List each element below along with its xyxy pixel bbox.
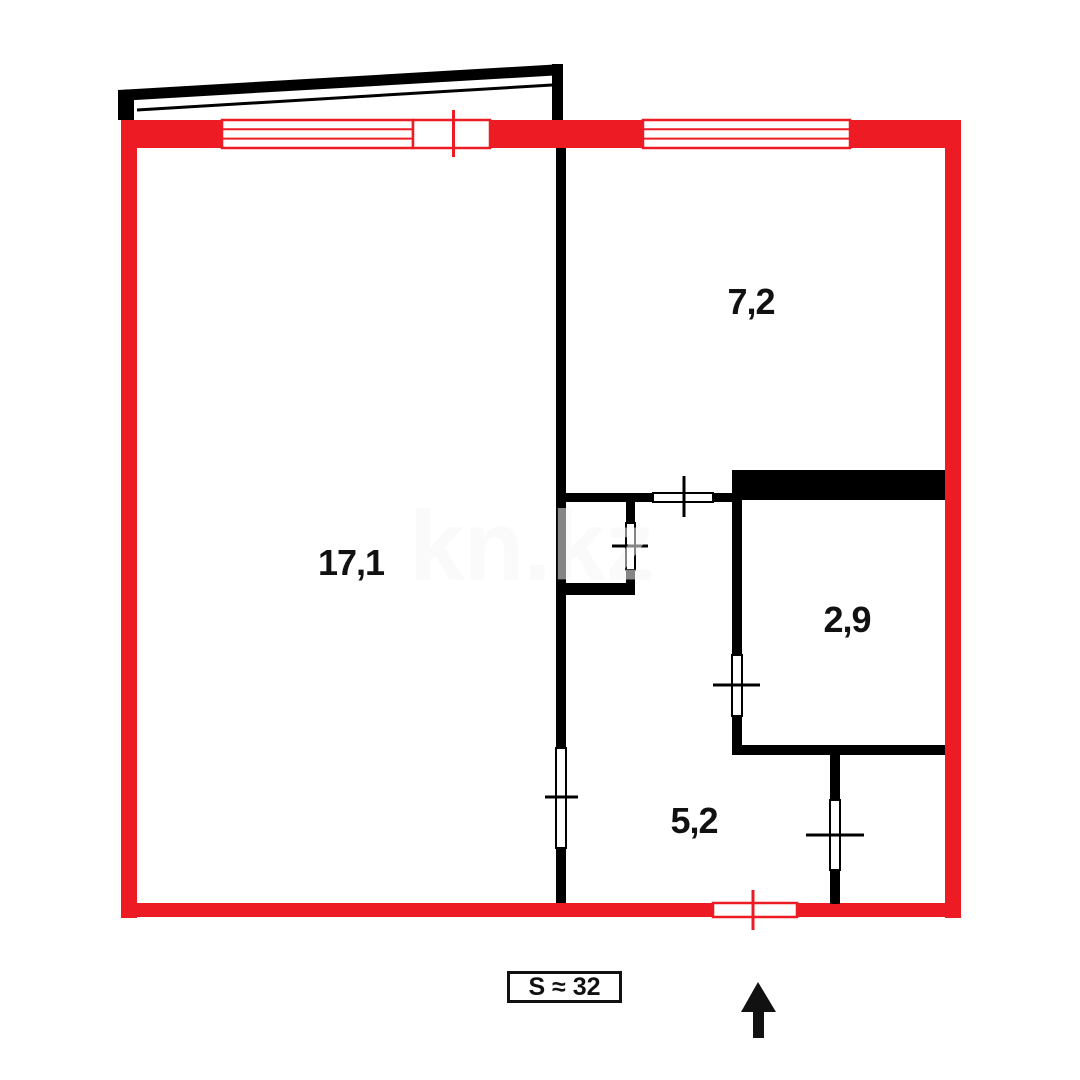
room-label-kitchen: 7,2 bbox=[727, 281, 774, 323]
room-label-bathroom: 2,9 bbox=[823, 599, 870, 641]
outer-wall-right bbox=[945, 120, 961, 918]
bathroom-wall-left-upper bbox=[732, 500, 742, 655]
total-area-box: S ≈ 32 bbox=[507, 971, 622, 1003]
window-living-room bbox=[222, 120, 413, 148]
balcony-right-post bbox=[552, 64, 563, 120]
vestibule-wall-upper bbox=[830, 755, 840, 800]
inner-walls bbox=[556, 148, 945, 904]
openings-exterior bbox=[222, 110, 850, 930]
window-kitchen bbox=[643, 120, 850, 148]
room-label-living-room: 17,1 bbox=[318, 542, 384, 584]
closet-wall-bottom bbox=[566, 583, 635, 595]
balcony-left-post bbox=[118, 90, 134, 120]
closet-wall-upper bbox=[626, 502, 635, 523]
outer-wall-bottom bbox=[121, 903, 961, 917]
outer-wall-left bbox=[121, 120, 137, 918]
bathroom-wall-bottom bbox=[732, 745, 945, 755]
bathroom-wall-thick bbox=[732, 470, 945, 500]
door-kitchen bbox=[653, 476, 713, 517]
central-wall-lower bbox=[556, 848, 566, 903]
north-arrow-icon bbox=[741, 982, 776, 1038]
floor-plan: kn.kz bbox=[0, 0, 1080, 1080]
hall-wall-right bbox=[713, 493, 732, 502]
central-wall-upper bbox=[556, 148, 566, 748]
hall-wall-left bbox=[556, 493, 653, 502]
balcony-parapet bbox=[118, 64, 563, 101]
door-bathroom bbox=[713, 655, 760, 716]
entrance-door bbox=[713, 890, 797, 930]
room-label-hallway: 5,2 bbox=[670, 800, 717, 842]
vestibule-wall-lower bbox=[830, 870, 840, 904]
door-living-room bbox=[545, 748, 578, 848]
floor-plan-drawing bbox=[0, 0, 1080, 1080]
balcony-outline bbox=[118, 64, 563, 120]
balcony-door bbox=[413, 110, 490, 157]
door-closet bbox=[612, 523, 648, 570]
door-vestibule bbox=[806, 800, 864, 870]
